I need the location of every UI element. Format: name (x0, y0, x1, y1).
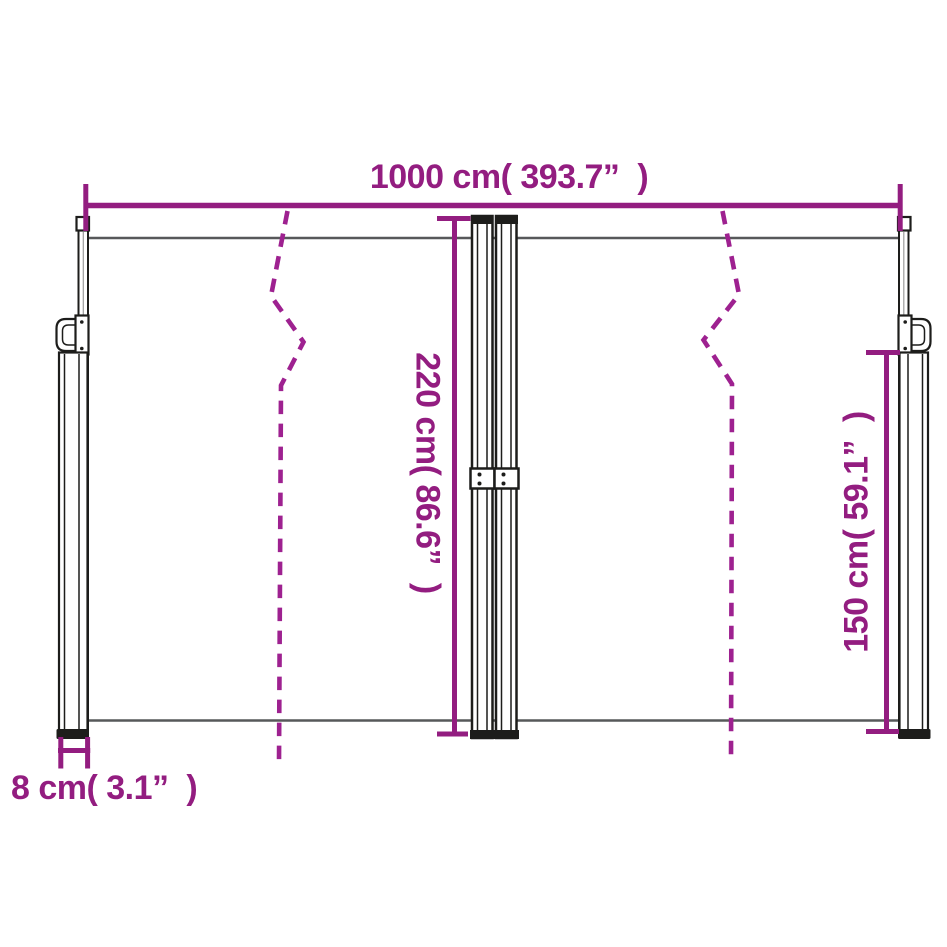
center-post-left-bracket (471, 469, 495, 489)
left-post-handle (57, 319, 78, 351)
screw-dot (502, 473, 506, 477)
center-double-post (470, 215, 519, 739)
base-width-dimension-marker (58, 737, 90, 769)
screw-dot (478, 482, 482, 486)
screw-dot (80, 320, 84, 324)
center-post-left-top-cap (471, 215, 494, 224)
left-extension-dashed-line (271, 211, 304, 763)
awning-dimension-diagram: 1000 cm( 393.7” ) 220 cm( 86.6” ) 150 cm… (0, 0, 947, 947)
screw-dot (502, 482, 506, 486)
center-post-right-top-cap (496, 215, 519, 224)
screw-dot (903, 347, 907, 351)
right-wall-post (898, 217, 931, 739)
right-post-base-foot (898, 729, 931, 739)
right-post-handle (910, 319, 931, 351)
screw-dot (903, 320, 907, 324)
center-post-right-base-cap (495, 730, 520, 739)
screw-dot (80, 347, 84, 351)
center-height-dimension-label: 220 cm( 86.6” ) (408, 352, 445, 593)
base-width-dimension-label: 8 cm( 3.1” ) (11, 770, 197, 807)
center-post-left-base-cap (470, 730, 495, 739)
screw-dot (478, 473, 482, 477)
width-dimension-label: 1000 cm( 393.7” ) (370, 159, 648, 196)
right-extension-dashed-line (704, 211, 740, 763)
side-height-dimension-label: 150 cm( 59.1” ) (838, 411, 875, 652)
center-post-right-bracket (495, 469, 519, 489)
right-post-cassette-sleeve (900, 353, 929, 731)
left-post-cassette-sleeve (59, 353, 88, 731)
left-wall-post (57, 217, 90, 739)
